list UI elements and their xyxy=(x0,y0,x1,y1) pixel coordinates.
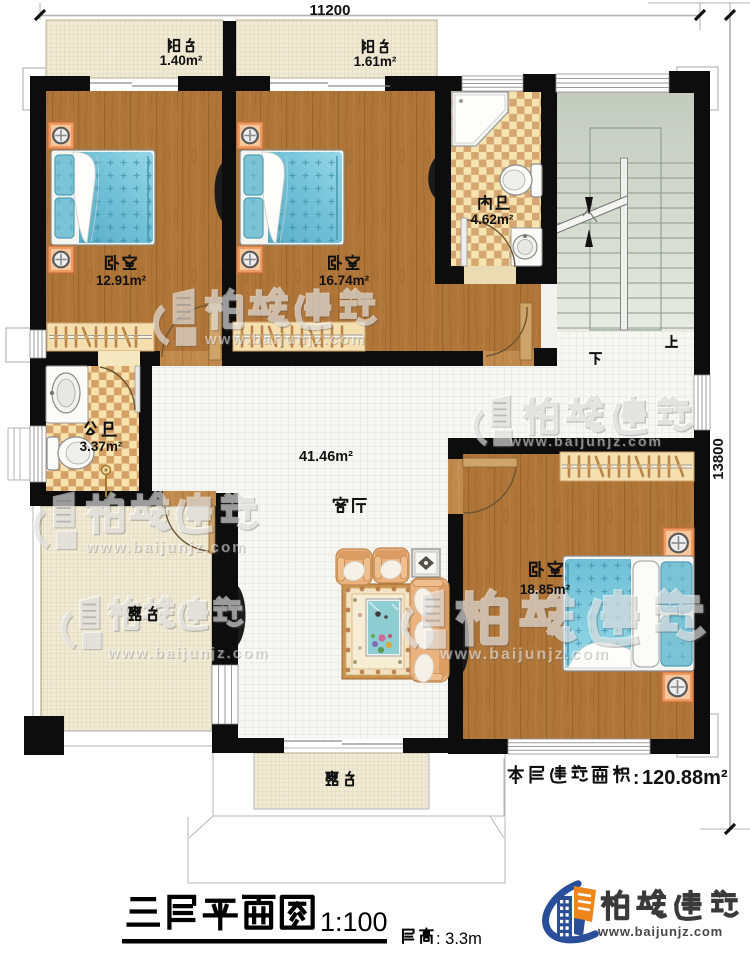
svg-text:1:100: 1:100 xyxy=(320,907,388,937)
svg-text:18.85m²: 18.85m² xyxy=(520,582,571,597)
svg-text:www.baijunjz.com: www.baijunjz.com xyxy=(439,646,610,663)
svg-text:13800: 13800 xyxy=(710,438,727,480)
svg-text:www.baijunjz.com: www.baijunjz.com xyxy=(204,331,366,348)
svg-text:www.baijunjz.com: www.baijunjz.com xyxy=(509,433,663,449)
svg-text:www.baijunjz.com: www.baijunjz.com xyxy=(597,924,723,939)
svg-text:4.62m²: 4.62m² xyxy=(471,212,514,227)
svg-text:www.baijunjz.com: www.baijunjz.com xyxy=(85,539,247,556)
svg-text:120.88m²: 120.88m² xyxy=(642,767,728,789)
svg-text:www.baijunjz.com: www.baijunjz.com xyxy=(107,645,269,662)
svg-text:12.91m²: 12.91m² xyxy=(96,273,147,288)
svg-text:1.61m²: 1.61m² xyxy=(354,54,397,69)
svg-text:3.37m²: 3.37m² xyxy=(80,439,123,454)
svg-text::: : xyxy=(633,768,639,789)
svg-text:41.46m²: 41.46m² xyxy=(299,449,353,465)
svg-text:1.40m²: 1.40m² xyxy=(160,53,203,68)
svg-text:11200: 11200 xyxy=(310,2,351,19)
svg-text:: 3.3m: : 3.3m xyxy=(436,930,482,948)
svg-text:16.74m²: 16.74m² xyxy=(319,273,370,288)
